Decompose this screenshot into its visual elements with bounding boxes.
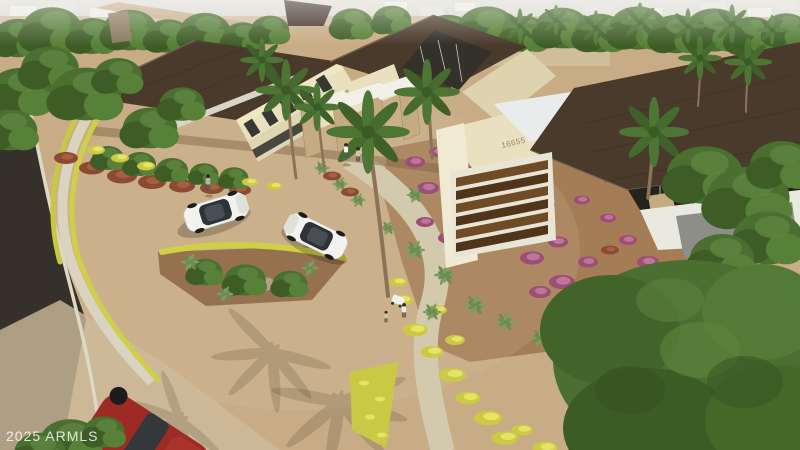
large-tree-canopy bbox=[540, 260, 800, 450]
yellow-flowers bbox=[353, 380, 371, 389]
person-shadow bbox=[343, 164, 351, 167]
yellow-flowers bbox=[369, 396, 387, 405]
palm-tree bbox=[394, 59, 460, 125]
person-shadow bbox=[205, 195, 213, 198]
yellow-flowers bbox=[359, 414, 377, 423]
yellow-flowers bbox=[371, 432, 389, 441]
palm-tree bbox=[326, 90, 410, 174]
atmospheric-haze bbox=[0, 0, 800, 46]
palm-tree bbox=[293, 83, 341, 131]
armls-watermark: 2025 ARMLS bbox=[6, 428, 99, 444]
rendering-photo: 16655 bbox=[0, 0, 800, 450]
